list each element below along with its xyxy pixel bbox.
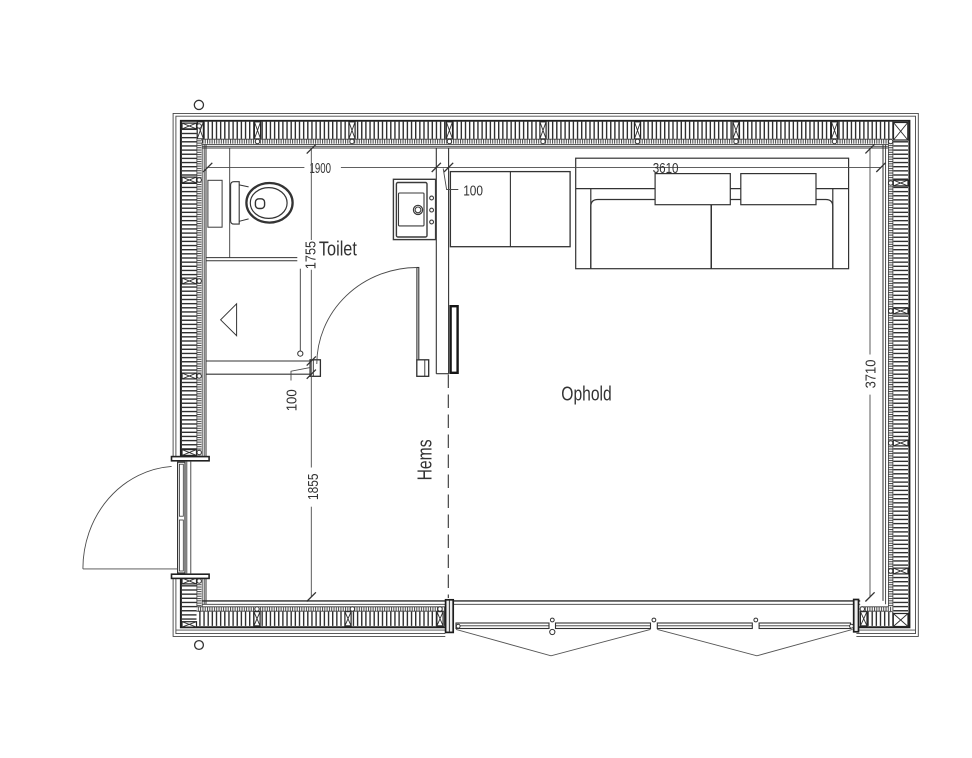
svg-text:1755: 1755 [304,241,320,269]
svg-text:Hems: Hems [415,439,437,480]
svg-text:Toilet: Toilet [319,239,357,261]
svg-text:1855: 1855 [306,474,322,501]
svg-text:100: 100 [463,184,483,200]
svg-text:1900: 1900 [310,161,332,177]
svg-text:3710: 3710 [863,360,879,389]
svg-text:Ophold: Ophold [561,383,611,406]
svg-text:100: 100 [285,389,301,411]
svg-text:3610: 3610 [653,161,679,177]
